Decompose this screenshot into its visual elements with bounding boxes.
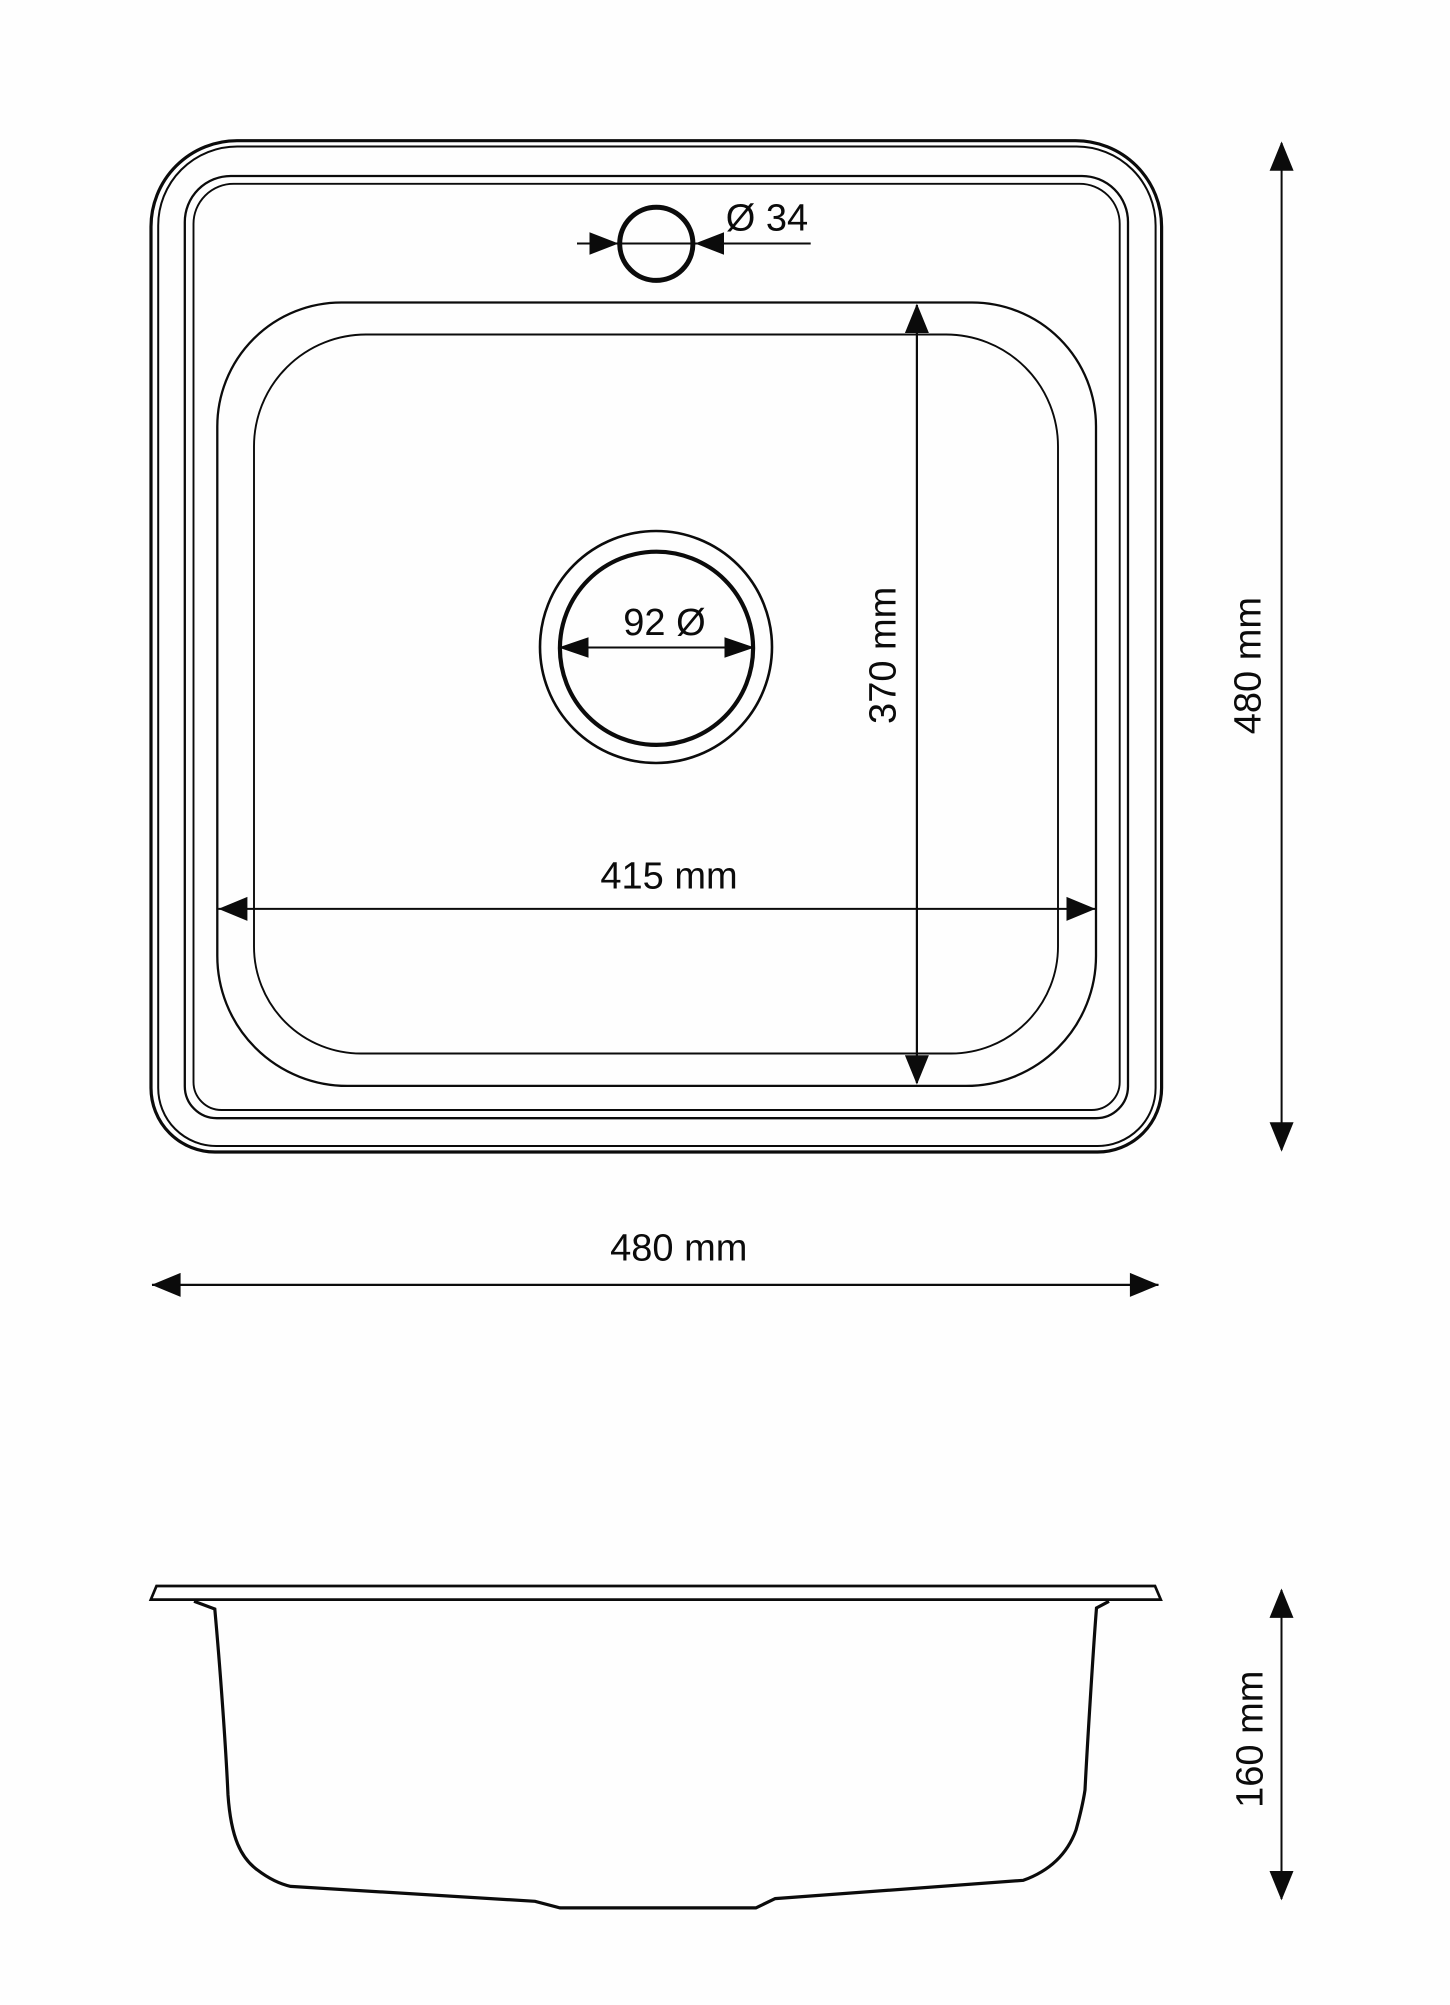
svg-text:Ø 34: Ø 34	[726, 198, 808, 240]
svg-text:370 mm: 370 mm	[863, 587, 905, 724]
svg-text:415 mm: 415 mm	[600, 855, 737, 897]
svg-text:92 Ø: 92 Ø	[623, 602, 705, 644]
svg-text:480 mm: 480 mm	[610, 1227, 747, 1269]
svg-text:480 mm: 480 mm	[1228, 597, 1270, 734]
svg-text:160 mm: 160 mm	[1230, 1671, 1272, 1808]
